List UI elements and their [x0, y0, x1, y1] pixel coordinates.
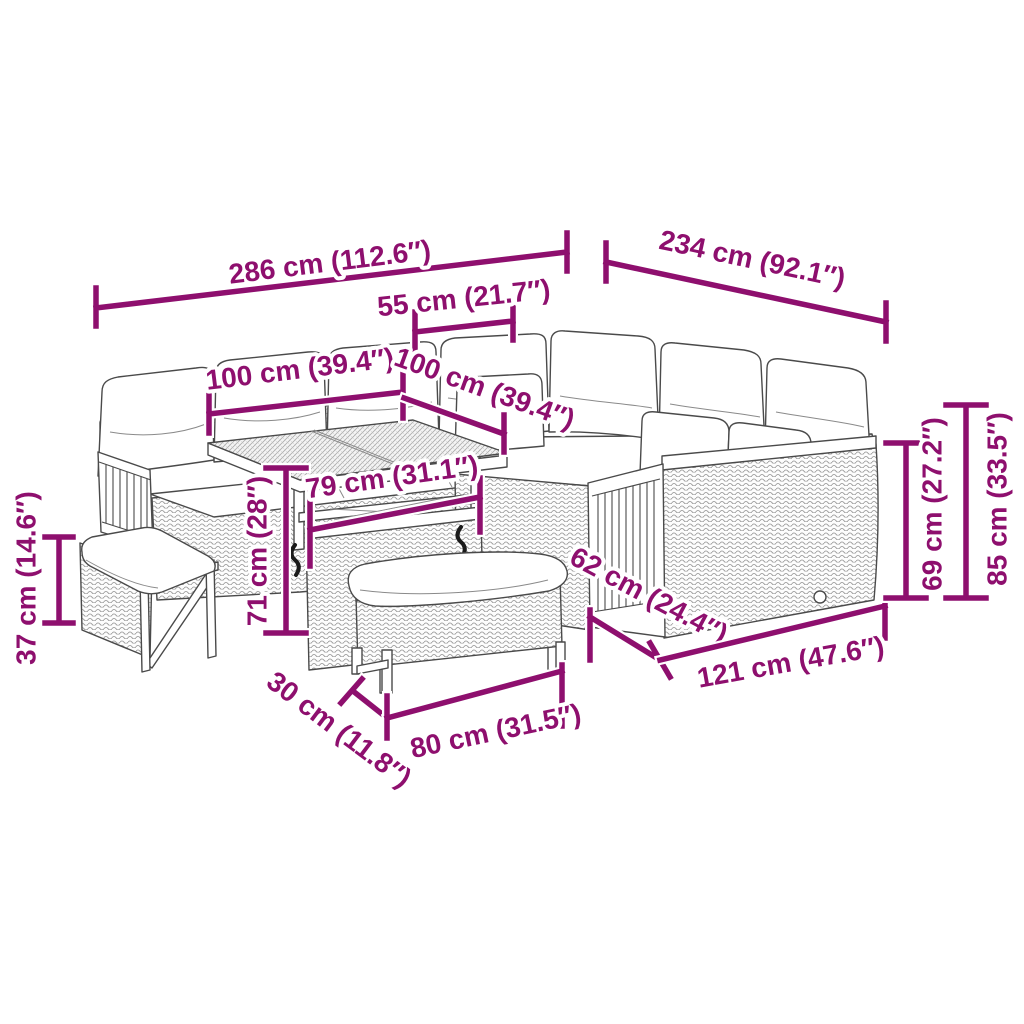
dimension-label: 37 cm (14.6″) [10, 491, 41, 665]
bench-leg [206, 560, 216, 658]
dimension-label: 85 cm (33.5″) [981, 412, 1012, 586]
bench-leg [382, 650, 392, 693]
diagram-canvas: 286 cm (112.6″) 234 cm (92.1″) 55 cm (21… [0, 0, 1024, 1024]
diagram-page: 286 cm (112.6″) 234 cm (92.1″) 55 cm (21… [0, 0, 1024, 1024]
dimension-label: 71 cm (28″) [241, 476, 272, 626]
dimension-label: 69 cm (27.2″) [916, 417, 947, 591]
drain-hole [814, 591, 826, 603]
